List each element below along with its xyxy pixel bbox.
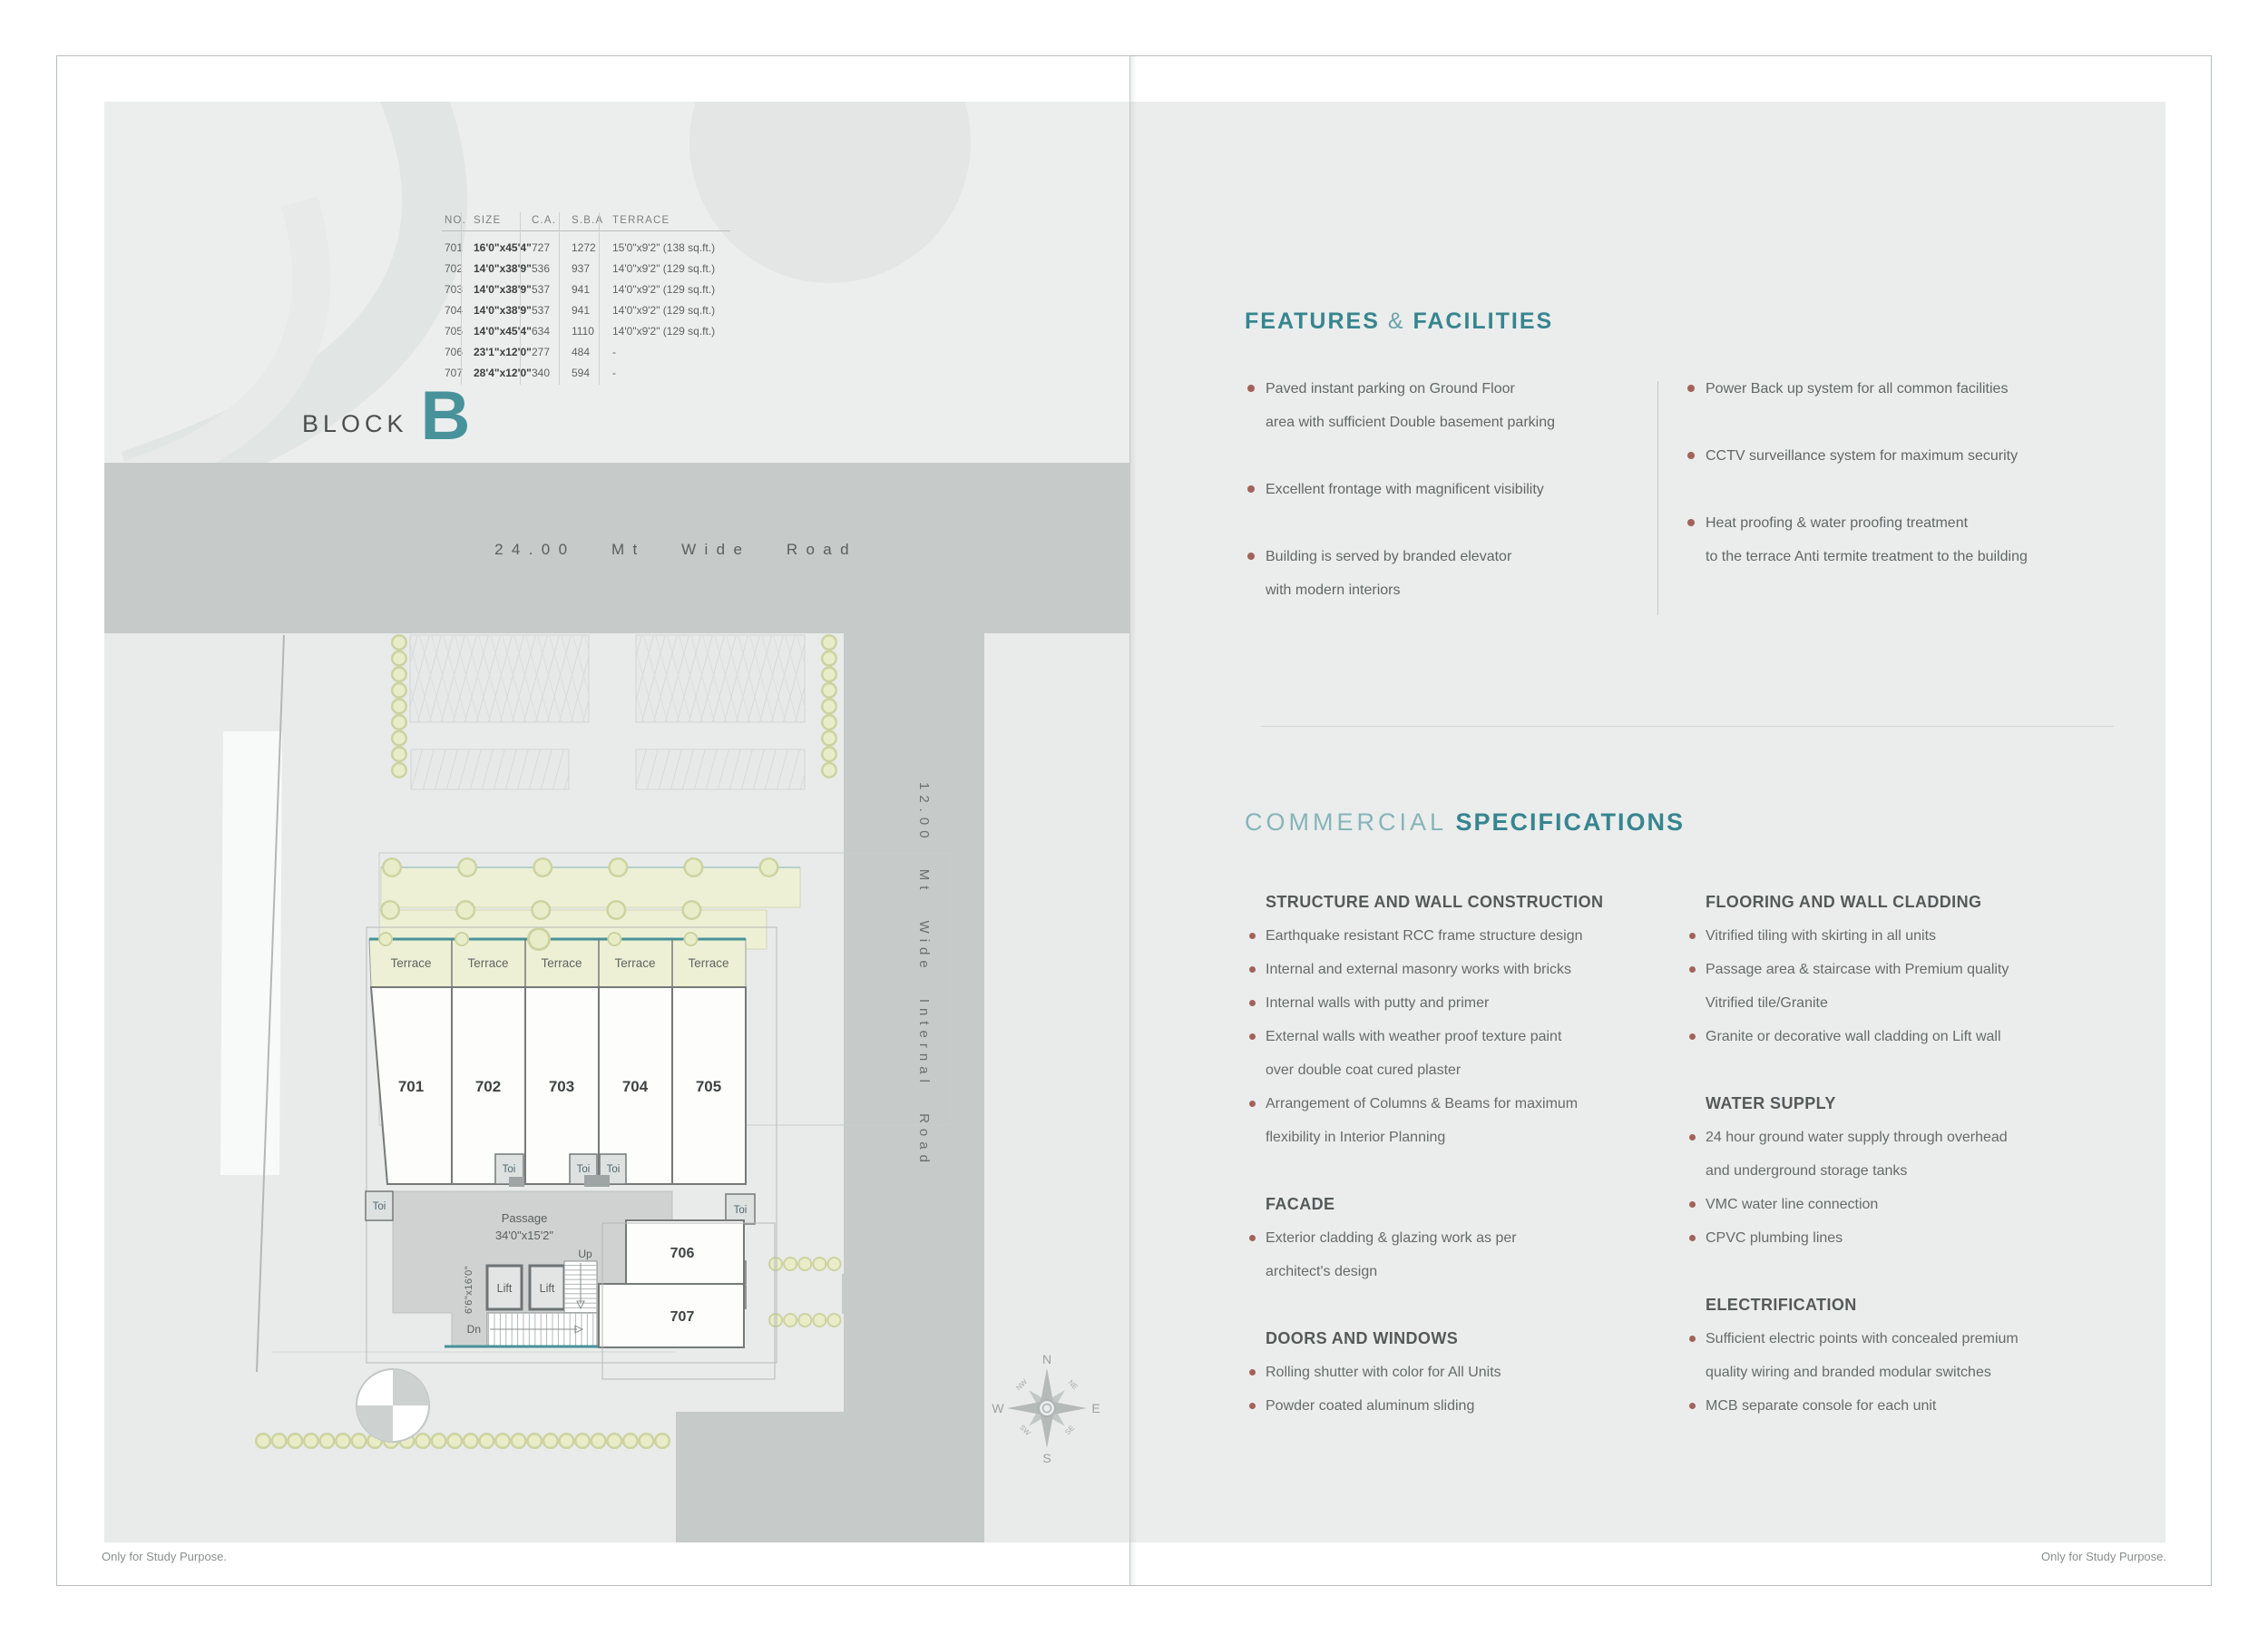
feature-line: Power Back up system for all common faci… xyxy=(1706,372,2168,406)
cell-size: 16'0"x45'4" xyxy=(474,238,532,259)
main-road-label: 24.00 Mt Wide Road xyxy=(358,541,993,559)
terrace-label: Terrace xyxy=(467,956,508,970)
spec-line: 24 hour ground water supply through over… xyxy=(1706,1121,2177,1154)
cell-size: 14'0"x38'9" xyxy=(474,300,532,321)
cell-terrace: - xyxy=(612,363,616,384)
cell-size: 28'4"x12'0" xyxy=(474,363,532,384)
spec-line: flexibility in Interior Planning xyxy=(1266,1121,1692,1154)
feature-line: Heat proofing & water proofing treatment xyxy=(1706,506,2168,540)
spec-item: 24 hour ground water supply through over… xyxy=(1706,1121,2177,1188)
parking-area xyxy=(410,635,805,789)
compass-icon: N S W E NW NE SW SE xyxy=(992,1352,1100,1465)
feature-line: to the terrace Anti termite treatment to… xyxy=(1706,540,2168,573)
cell-ca: 536 xyxy=(532,259,572,279)
unit-number: 705 xyxy=(696,1078,721,1095)
unit-number: 703 xyxy=(549,1078,574,1095)
brochure-page: BLOCK B 7th Floor Plan NO.SIZEC.A.S.B.AT… xyxy=(0,0,2268,1645)
features-title: FEATURES & FACILITIES xyxy=(1245,308,1553,335)
terrace-label: Terrace xyxy=(390,956,431,970)
cell-size: 14'0"x38'9" xyxy=(474,279,532,300)
terrace-label: Terrace xyxy=(541,956,582,970)
spec-line: over double coat cured plaster xyxy=(1266,1053,1692,1087)
lift-label: Lift xyxy=(497,1282,513,1295)
cell-size: 14'0"x38'9" xyxy=(474,259,532,279)
table-row: 70116'0"x45'4"727127215'0"x9'2" (138 sq.… xyxy=(442,238,773,259)
cell-no: 703 xyxy=(442,279,474,300)
table-rule xyxy=(442,230,730,231)
stair-dn-label: Dn xyxy=(467,1323,481,1336)
spec-item: CPVC plumbing lines xyxy=(1706,1221,2177,1255)
specs-column-left: STRUCTURE AND WALL CONSTRUCTION Earthqua… xyxy=(1266,886,1692,1423)
cell-ca: 634 xyxy=(532,321,572,342)
spec-item: Rolling shutter with color for All Units xyxy=(1266,1356,1692,1389)
spec-section: WATER SUPPLY 24 hour ground water supply… xyxy=(1706,1087,2177,1255)
toi-label: Toi xyxy=(373,1201,386,1212)
cell-no: 707 xyxy=(442,363,474,384)
stair-up-label: Up xyxy=(578,1248,592,1260)
spec-line: Internal and external masonry works with… xyxy=(1266,953,1692,986)
spec-line: External walls with weather proof textur… xyxy=(1266,1020,1692,1053)
passage-size: 34'0"x15'2" xyxy=(495,1229,553,1242)
spec-line: Powder coated aluminum sliding xyxy=(1266,1389,1692,1423)
cell-sba: 937 xyxy=(572,259,612,279)
landscape-circle xyxy=(357,1369,429,1442)
feature-item: Power Back up system for all common faci… xyxy=(1706,372,2168,406)
cell-terrace: 14'0"x9'2" (129 sq.ft.) xyxy=(612,259,715,279)
table-row: 70623'1"x12'0"277484- xyxy=(442,342,773,363)
feature-item: Building is served by branded elevator w… xyxy=(1266,540,1683,607)
spec-title-light: COMMERCIAL xyxy=(1245,808,1447,836)
spec-line: CPVC plumbing lines xyxy=(1706,1221,2177,1255)
floor-plan-area: 12.00 Mt Wide Internal Road xyxy=(104,633,1129,1542)
study-purpose-note-right: Only for Study Purpose. xyxy=(2041,1550,2166,1563)
spec-item: Vitrified tiling with skirting in all un… xyxy=(1706,919,2177,953)
spec-heading: WATER SUPPLY xyxy=(1706,1087,2177,1121)
terrace-label: Terrace xyxy=(614,956,655,970)
spec-item: Exterior cladding & glazing work as per … xyxy=(1266,1221,1692,1288)
spec-section: ELECTRIFICATION Sufficient electric poin… xyxy=(1706,1288,2177,1423)
main-road-band: 24.00 Mt Wide Road xyxy=(104,463,1129,633)
feature-item: Heat proofing & water proofing treatment… xyxy=(1706,506,2168,573)
feature-item: Excellent frontage with magnificent visi… xyxy=(1266,473,1683,506)
lower-units: 706 707 xyxy=(599,1220,775,1379)
cell-size: 23'1"x12'0" xyxy=(474,342,532,363)
spec-heading: ELECTRIFICATION xyxy=(1706,1288,2177,1322)
cell-no: 702 xyxy=(442,259,474,279)
unit-number: 702 xyxy=(475,1078,501,1095)
unit-number: 701 xyxy=(398,1078,424,1095)
feature-line: Building is served by branded elevator xyxy=(1266,540,1683,573)
stair-size-label: 6'6"x16'0" xyxy=(464,1266,474,1314)
study-purpose-note-left: Only for Study Purpose. xyxy=(102,1550,227,1563)
spec-heading: FLOORING AND WALL CLADDING xyxy=(1706,886,2177,919)
lift-label: Lift xyxy=(540,1282,555,1295)
table-separator xyxy=(599,212,600,385)
spec-item: Sufficient electric points with conceale… xyxy=(1706,1322,2177,1389)
spec-item: External walls with weather proof textur… xyxy=(1266,1020,1692,1087)
block-letter: B xyxy=(421,388,471,445)
col-header-size: SIZE xyxy=(474,214,532,227)
spec-heading: FACADE xyxy=(1266,1188,1692,1221)
page-fold-shadow xyxy=(1130,55,1137,1586)
specs-column-right: FLOORING AND WALL CLADDING Vitrified til… xyxy=(1706,886,2177,1423)
feature-item: Paved instant parking on Ground Floor ar… xyxy=(1266,372,1683,439)
cell-ca: 537 xyxy=(532,279,572,300)
landscape-strips xyxy=(379,867,800,949)
spec-line: and underground storage tanks xyxy=(1706,1154,2177,1188)
cell-terrace: 14'0"x9'2" (129 sq.ft.) xyxy=(612,321,715,342)
spec-section: FACADE Exterior cladding & glazing work … xyxy=(1266,1188,1692,1288)
unit-table: NO.SIZEC.A.S.B.ATERRACE 70116'0"x45'4"72… xyxy=(442,214,773,384)
spec-item: VMC water line connection xyxy=(1706,1188,2177,1221)
spec-line: Exterior cladding & glazing work as per xyxy=(1266,1221,1692,1255)
feature-line: Excellent frontage with magnificent visi… xyxy=(1266,473,1683,506)
feature-line: with modern interiors xyxy=(1266,573,1683,607)
spec-section: STRUCTURE AND WALL CONSTRUCTION Earthqua… xyxy=(1266,886,1692,1154)
spec-line: quality wiring and branded modular switc… xyxy=(1706,1356,2177,1389)
col-header-ca: C.A. xyxy=(532,214,572,227)
toi-label: Toi xyxy=(577,1164,591,1175)
unit-number: 704 xyxy=(622,1078,649,1095)
compass-s: S xyxy=(1042,1451,1051,1465)
compass-e: E xyxy=(1091,1401,1100,1415)
spec-line: architect's design xyxy=(1266,1255,1692,1288)
cell-terrace: 14'0"x9'2" (129 sq.ft.) xyxy=(612,300,715,321)
table-separator xyxy=(461,212,462,385)
spec-line: Sufficient electric points with conceale… xyxy=(1706,1322,2177,1356)
cell-ca: 277 xyxy=(532,342,572,363)
cell-sba: 1110 xyxy=(572,321,612,342)
unit-number: 706 xyxy=(670,1246,695,1261)
table-row: 70414'0"x38'9"53794114'0"x9'2" (129 sq.f… xyxy=(442,300,773,321)
block-label: BLOCK xyxy=(302,410,408,445)
col-header-no: NO. xyxy=(442,214,474,227)
compass-se: SE xyxy=(1063,1424,1076,1436)
table-row: 70514'0"x45'4"634111014'0"x9'2" (129 sq.… xyxy=(442,321,773,342)
cell-sba: 1272 xyxy=(572,238,612,259)
spec-title-bold: SPECIFICATIONS xyxy=(1456,808,1686,836)
cell-terrace: 14'0"x9'2" (129 sq.ft.) xyxy=(612,279,715,300)
spec-line: Earthquake resistant RCC frame structure… xyxy=(1266,919,1692,953)
spec-line: Arrangement of Columns & Beams for maxim… xyxy=(1266,1087,1692,1121)
unit-row: 701 702 703 704 705 xyxy=(371,987,746,1184)
spec-item: Arrangement of Columns & Beams for maxim… xyxy=(1266,1087,1692,1154)
spec-item: Internal walls with putty and primer xyxy=(1266,986,1692,1020)
features-title-amp: & xyxy=(1388,308,1405,334)
cell-sba: 941 xyxy=(572,279,612,300)
cell-no: 701 xyxy=(442,238,474,259)
table-row: 70314'0"x38'9"53794114'0"x9'2" (129 sq.f… xyxy=(442,279,773,300)
table-separator xyxy=(559,212,560,385)
spec-heading: DOORS AND WINDOWS xyxy=(1266,1322,1692,1356)
table-row: 70728'4"x12'0"340594- xyxy=(442,363,773,384)
terrace-row: Terrace Terrace Terrace Terrace Terrace xyxy=(369,939,746,987)
cell-sba: 594 xyxy=(572,363,612,384)
feature-line: area with sufficient Double basement par… xyxy=(1266,406,1683,439)
cell-ca: 340 xyxy=(532,363,572,384)
cell-sba: 941 xyxy=(572,300,612,321)
spec-line: VMC water line connection xyxy=(1706,1188,2177,1221)
features-title-tail: FACILITIES xyxy=(1413,308,1553,334)
cell-ca: 537 xyxy=(532,300,572,321)
features-divider xyxy=(1657,381,1658,615)
feature-item: CCTV surveillance system for maximum sec… xyxy=(1706,439,2168,473)
passage-label: Passage xyxy=(502,1211,548,1225)
spec-line: Vitrified tiling with skirting in all un… xyxy=(1706,919,2177,953)
compass-w: W xyxy=(992,1401,1004,1415)
spec-line: Granite or decorative wall cladding on L… xyxy=(1706,1020,2177,1053)
spec-item: Powder coated aluminum sliding xyxy=(1266,1389,1692,1423)
features-column-left: Paved instant parking on Ground Floor ar… xyxy=(1266,372,1683,607)
col-header-sba: S.B.A xyxy=(572,214,612,227)
cell-terrace: - xyxy=(612,342,616,363)
spec-section: FLOORING AND WALL CLADDING Vitrified til… xyxy=(1706,886,2177,1053)
spec-item: Passage area & staircase with Premium qu… xyxy=(1706,953,2177,1020)
section-divider xyxy=(1261,726,2114,727)
internal-road-label: 12.00 Mt Wide Internal Road xyxy=(916,782,932,1168)
cell-no: 704 xyxy=(442,300,474,321)
table-header-row: NO.SIZEC.A.S.B.ATERRACE xyxy=(442,214,773,230)
spec-item: Granite or decorative wall cladding on L… xyxy=(1706,1020,2177,1053)
features-column-right: Power Back up system for all common faci… xyxy=(1706,372,2168,573)
col-header-terrace: TERRACE xyxy=(612,214,670,227)
toi-label: Toi xyxy=(734,1205,748,1216)
header-block: BLOCK B 7th Floor Plan NO.SIZEC.A.S.B.AT… xyxy=(104,102,1129,463)
spec-item: MCB separate console for each unit xyxy=(1706,1389,2177,1423)
toi-label: Toi xyxy=(503,1164,516,1175)
cell-sba: 484 xyxy=(572,342,612,363)
block-title: BLOCK B xyxy=(302,388,470,445)
spec-item: Earthquake resistant RCC frame structure… xyxy=(1266,919,1692,953)
cell-ca: 727 xyxy=(532,238,572,259)
unit-number: 707 xyxy=(670,1309,695,1325)
cell-no: 705 xyxy=(442,321,474,342)
table-separator xyxy=(520,212,521,385)
terrace-label: Terrace xyxy=(688,956,728,970)
compass-nw: NW xyxy=(1014,1377,1029,1392)
spec-line: Vitrified tile/Granite xyxy=(1706,986,2177,1020)
table-row: 70214'0"x38'9"53693714'0"x9'2" (129 sq.f… xyxy=(442,259,773,279)
compass-ne: NE xyxy=(1067,1378,1080,1391)
spec-section: DOORS AND WINDOWS Rolling shutter with c… xyxy=(1266,1322,1692,1423)
spec-line: Rolling shutter with color for All Units xyxy=(1266,1356,1692,1389)
spec-heading: STRUCTURE AND WALL CONSTRUCTION xyxy=(1266,886,1692,919)
table-rows: 70116'0"x45'4"727127215'0"x9'2" (138 sq.… xyxy=(442,238,773,384)
spec-item: Internal and external masonry works with… xyxy=(1266,953,1692,986)
spec-line: Passage area & staircase with Premium qu… xyxy=(1706,953,2177,986)
spec-line: Internal walls with putty and primer xyxy=(1266,986,1692,1020)
specifications-title: COMMERCIAL SPECIFICATIONS xyxy=(1245,808,1685,837)
toi-label: Toi xyxy=(607,1164,621,1175)
cell-terrace: 15'0"x9'2" (138 sq.ft.) xyxy=(612,238,715,259)
spec-line: MCB separate console for each unit xyxy=(1706,1389,2177,1423)
features-title-main: FEATURES xyxy=(1245,308,1380,334)
feature-line: Paved instant parking on Ground Floor xyxy=(1266,372,1683,406)
compass-n: N xyxy=(1042,1352,1051,1366)
cell-no: 706 xyxy=(442,342,474,363)
cell-size: 14'0"x45'4" xyxy=(474,321,532,342)
feature-line: CCTV surveillance system for maximum sec… xyxy=(1706,439,2168,473)
floor-plan-drawing: 12.00 Mt Wide Internal Road xyxy=(104,633,1129,1542)
